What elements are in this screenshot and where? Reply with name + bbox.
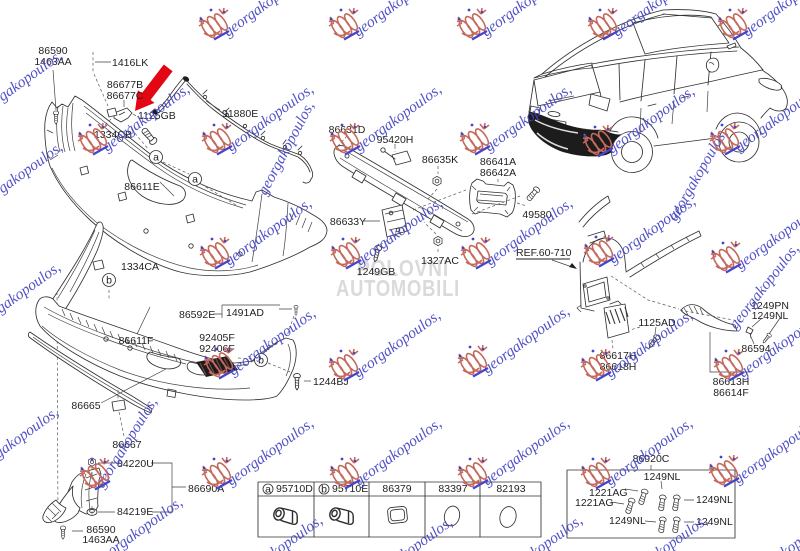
svg-text:86677C: 86677C bbox=[107, 90, 144, 102]
svg-text:91880E: 91880E bbox=[222, 108, 258, 120]
svg-text:1249NL: 1249NL bbox=[752, 310, 789, 322]
svg-text:1221AG: 1221AG bbox=[575, 497, 614, 509]
svg-text:AUTOMOBILI: AUTOMOBILI bbox=[336, 275, 460, 301]
svg-text:82193: 82193 bbox=[496, 483, 525, 495]
svg-text:a: a bbox=[192, 174, 198, 186]
svg-text:86592E: 86592E bbox=[179, 309, 215, 321]
svg-text:1416LK: 1416LK bbox=[112, 57, 148, 69]
svg-text:b: b bbox=[321, 484, 327, 496]
svg-text:a: a bbox=[153, 152, 159, 164]
svg-text:1249NL: 1249NL bbox=[696, 494, 733, 506]
svg-text:86635K: 86635K bbox=[422, 154, 458, 166]
svg-text:86690A: 86690A bbox=[188, 483, 224, 495]
svg-text:86611F: 86611F bbox=[119, 335, 154, 347]
svg-text:95710D: 95710D bbox=[276, 483, 313, 495]
svg-text:1491AD: 1491AD bbox=[226, 307, 264, 319]
svg-text:86379: 86379 bbox=[382, 483, 411, 495]
svg-text:86614F: 86614F bbox=[713, 387, 749, 399]
svg-text:83397: 83397 bbox=[438, 483, 467, 495]
svg-text:1249NL: 1249NL bbox=[644, 471, 681, 483]
svg-text:b: b bbox=[106, 275, 112, 287]
svg-text:1327AC: 1327AC bbox=[421, 255, 459, 267]
svg-text:a: a bbox=[265, 484, 271, 496]
svg-text:86642A: 86642A bbox=[480, 167, 516, 179]
svg-text:REF.60-710: REF.60-710 bbox=[516, 247, 572, 259]
svg-text:86611E: 86611E bbox=[124, 181, 159, 193]
svg-text:86665: 86665 bbox=[71, 400, 100, 412]
svg-text:1249NL: 1249NL bbox=[609, 515, 646, 527]
svg-text:1334CA: 1334CA bbox=[121, 261, 159, 273]
svg-text:86633Y: 86633Y bbox=[330, 216, 366, 228]
